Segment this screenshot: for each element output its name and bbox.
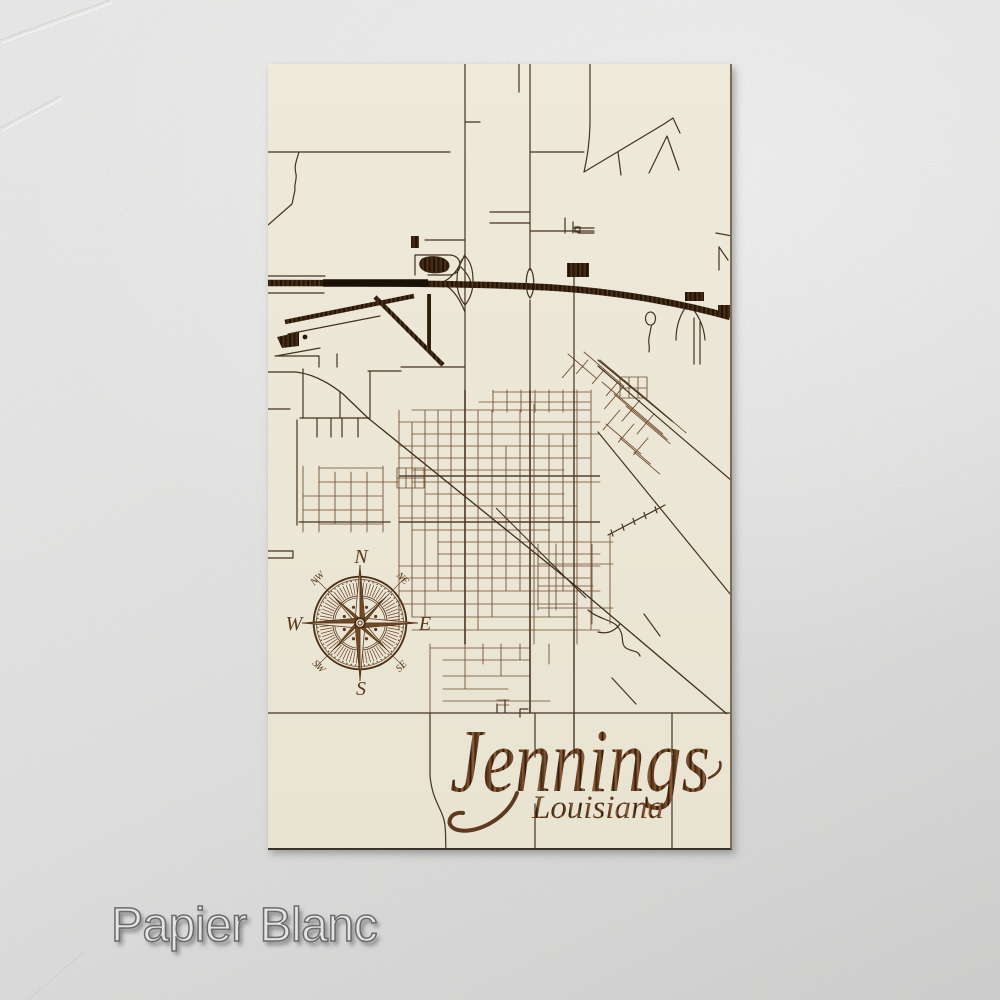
svg-text:NE: NE: [393, 570, 411, 588]
svg-text:N: N: [353, 546, 369, 568]
svg-text:SE: SE: [394, 659, 410, 675]
svg-text:SW: SW: [310, 658, 328, 676]
svg-text:E: E: [418, 613, 431, 635]
svg-text:Louisiana: Louisiana: [531, 790, 664, 826]
svg-text:NW: NW: [308, 568, 328, 588]
svg-text:S: S: [356, 678, 366, 700]
svg-text:W: W: [286, 613, 305, 635]
